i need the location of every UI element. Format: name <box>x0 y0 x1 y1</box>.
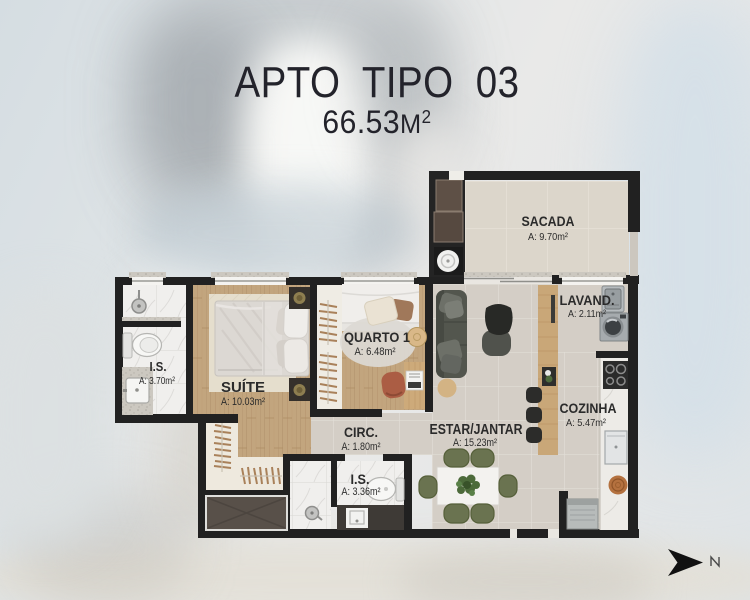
svg-text:A: 6.48m²: A: 6.48m² <box>355 346 396 358</box>
svg-text:COZINHA: COZINHA <box>560 400 617 416</box>
svg-text:A: 3.36m²: A: 3.36m² <box>342 486 381 498</box>
svg-text:A: 5.47m²: A: 5.47m² <box>566 417 606 429</box>
svg-text:A: 9.70m²: A: 9.70m² <box>528 231 568 243</box>
svg-text:SACADA: SACADA <box>522 214 575 229</box>
svg-text:A: 3.70m²: A: 3.70m² <box>139 375 175 387</box>
svg-text:I.S.: I.S. <box>150 359 167 374</box>
svg-text:LAVAND.: LAVAND. <box>560 293 615 308</box>
svg-text:ESTAR/JANTAR: ESTAR/JANTAR <box>430 421 523 438</box>
svg-text:A: 10.03m²: A: 10.03m² <box>221 396 265 408</box>
svg-text:A: 2.11m²: A: 2.11m² <box>568 308 606 320</box>
svg-text:CIRC.: CIRC. <box>344 424 378 440</box>
svg-text:A: 15.23m²: A: 15.23m² <box>453 437 497 449</box>
svg-text:I.S.: I.S. <box>351 472 370 487</box>
svg-text:A: 1.80m²: A: 1.80m² <box>342 441 381 453</box>
svg-text:SUÍTE: SUÍTE <box>221 379 265 396</box>
svg-text:QUARTO 1: QUARTO 1 <box>344 329 410 345</box>
